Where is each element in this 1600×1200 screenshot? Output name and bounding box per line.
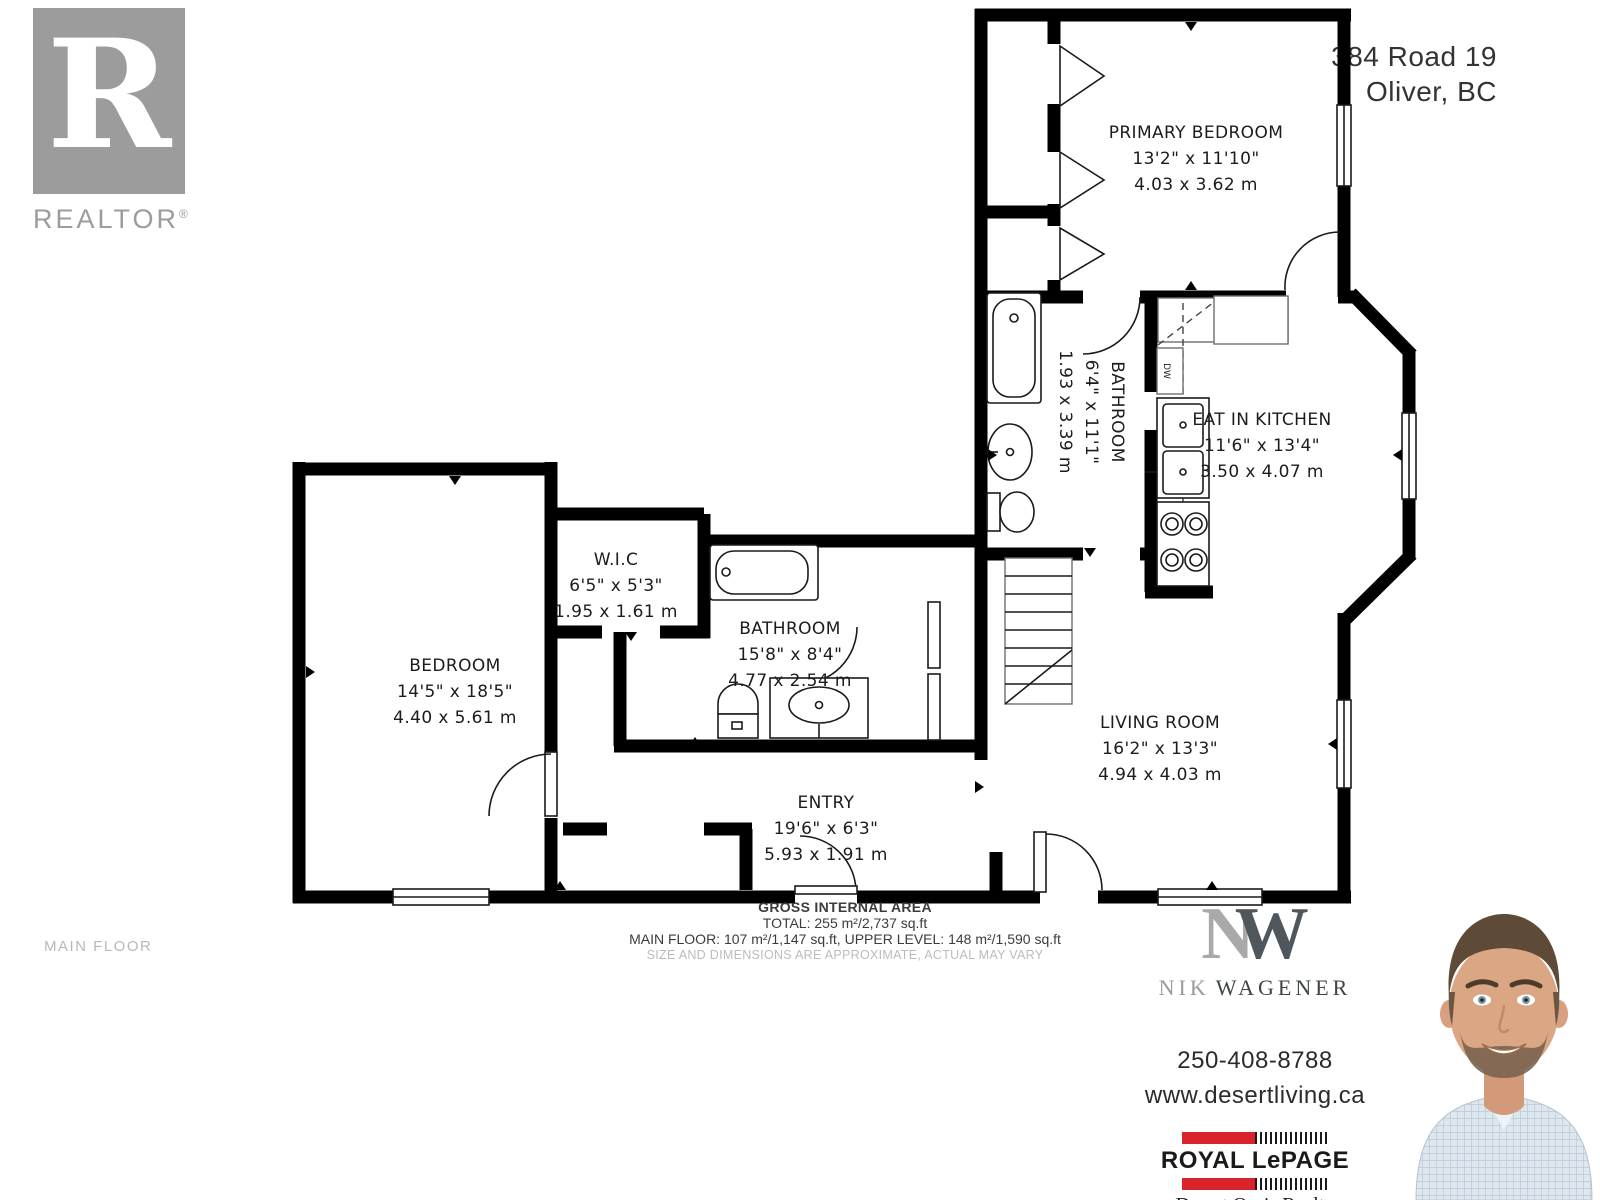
room-label-main-bathroom: BATHROOM 15'8" x 8'4" 4.77 x 2.54 m (728, 619, 852, 691)
svg-text:LIVING ROOM: LIVING ROOM (1100, 713, 1220, 733)
brokerage-bar-top (1182, 1132, 1328, 1144)
svg-text:13'2" x 11'10": 13'2" x 11'10" (1132, 149, 1259, 169)
agent-branding: NW NIKWAGENER 250-408-8788 www.desertliv… (1085, 905, 1425, 1200)
floor-level-label: MAIN FLOOR (44, 938, 152, 955)
svg-text:4.40 x 5.61 m: 4.40 x 5.61 m (393, 708, 517, 728)
door-arc-primary-bedroom (1285, 232, 1340, 290)
brokerage-bar-bottom (1182, 1178, 1328, 1190)
door-arc-living (1046, 834, 1102, 890)
window-kitchen-bay (1402, 413, 1416, 499)
bathtub-main (710, 545, 818, 600)
door-arc-bedroom (489, 754, 551, 816)
window-bedroom-bottom (393, 889, 489, 905)
room-label-kitchen: EAT IN KITCHEN 11'6" x 13'4" 3.50 x 4.07… (1192, 410, 1331, 482)
bathtub-upper (987, 293, 1041, 403)
svg-text:5.93 x 1.91 m: 5.93 x 1.91 m (764, 845, 888, 865)
room-label-upper-bathroom: BATHROOM 6'4" x 11'1" 1.93 x 3.39 m (1055, 350, 1127, 474)
svg-text:4.94 x 4.03 m: 4.94 x 4.03 m (1098, 765, 1222, 785)
area-summary: GROSS INTERNAL AREA TOTAL: 255 m²/2,737 … (520, 900, 1170, 963)
svg-text:BATHROOM: BATHROOM (1107, 361, 1127, 463)
svg-text:11'6" x 13'4": 11'6" x 13'4" (1204, 436, 1320, 456)
window-living-room-side (1337, 700, 1351, 788)
agent-headshot-illustration (1408, 880, 1600, 1200)
closet-bifold-doors (1060, 46, 1104, 280)
svg-text:4.77 x 2.54 m: 4.77 x 2.54 m (728, 671, 852, 691)
svg-text:EAT IN KITCHEN: EAT IN KITCHEN (1192, 410, 1331, 430)
linen-closet-doors (928, 602, 940, 740)
door-sill-entry (795, 886, 857, 894)
area-total: TOTAL: 255 m²/2,737 sq.ft (520, 916, 1170, 931)
area-disclaimer: SIZE AND DIMENSIONS ARE APPROXIMATE, ACT… (520, 949, 1170, 963)
svg-text:4.03 x 3.62 m: 4.03 x 3.62 m (1134, 175, 1258, 195)
agent-website: www.desertliving.ca (1085, 1082, 1425, 1110)
room-label-entry: ENTRY 19'6" x 6'3" 5.93 x 1.91 m (764, 793, 888, 865)
stove (1157, 502, 1209, 586)
svg-text:W.I.C: W.I.C (594, 550, 639, 570)
sink-upper (987, 424, 1032, 480)
svg-text:PRIMARY BEDROOM: PRIMARY BEDROOM (1109, 123, 1284, 143)
room-label-living-room: LIVING ROOM 16'2" x 13'3" 4.94 x 4.03 m (1098, 713, 1222, 785)
svg-text:3.50 x 4.07 m: 3.50 x 4.07 m (1200, 462, 1324, 482)
svg-text:19'6" x 6'3": 19'6" x 6'3" (774, 819, 879, 839)
door-arc-upper-bathroom (1083, 297, 1140, 354)
brokerage-name: ROYAL LePAGE (1085, 1147, 1425, 1175)
area-breakdown: MAIN FLOOR: 107 m²/1,147 sq.ft, UPPER LE… (520, 932, 1170, 947)
toilet-main (718, 684, 758, 738)
brokerage-office: Desert Oasis Realty (1085, 1194, 1425, 1200)
svg-text:DW: DW (1161, 363, 1171, 379)
svg-text:14'5" x 18'5": 14'5" x 18'5" (397, 682, 513, 702)
room-label-bedroom: BEDROOM 14'5" x 18'5" 4.40 x 5.61 m (393, 656, 517, 728)
main-bathroom-fixtures (710, 545, 940, 740)
agent-first-name: NIK (1159, 975, 1210, 1000)
svg-text:6'5" x 5'3": 6'5" x 5'3" (569, 576, 663, 596)
page: R REALTOR® 384 Road 19 Oliver, BC (0, 0, 1600, 1200)
agent-name: NIKWAGENER (1085, 975, 1425, 1001)
svg-text:1.95 x 1.61 m: 1.95 x 1.61 m (554, 602, 678, 622)
area-title: GROSS INTERNAL AREA (520, 900, 1170, 915)
staircase (1005, 558, 1072, 704)
agent-last-name: WAGENER (1216, 975, 1352, 1000)
toilet-upper (987, 492, 1034, 532)
svg-text:BATHROOM: BATHROOM (739, 619, 841, 639)
brokerage-logo: ROYAL LePAGE Desert Oasis Realty Indepen… (1085, 1132, 1425, 1200)
svg-text:15'8" x 8'4": 15'8" x 8'4" (738, 645, 843, 665)
upper-bathroom-fixtures (987, 293, 1041, 532)
room-label-primary-bedroom: PRIMARY BEDROOM 13'2" x 11'10" 4.03 x 3.… (1109, 123, 1284, 195)
door-leaf-bedroom (545, 752, 557, 816)
door-leaf-living (1034, 832, 1046, 892)
svg-text:6'4" x 11'1": 6'4" x 11'1" (1081, 360, 1101, 465)
svg-text:1.93 x 3.39 m: 1.93 x 3.39 m (1055, 350, 1075, 474)
monogram-w: W (1235, 893, 1309, 975)
agent-headshot (1408, 880, 1600, 1200)
room-label-wic: W.I.C 6'5" x 5'3" 1.95 x 1.61 m (554, 550, 678, 622)
agent-phone: 250-408-8788 (1085, 1047, 1425, 1075)
svg-text:16'2" x 13'3": 16'2" x 13'3" (1102, 739, 1218, 759)
window-primary-bedroom (1337, 105, 1351, 186)
agent-monogram-logo: NW (1085, 905, 1425, 967)
svg-text:ENTRY: ENTRY (798, 793, 855, 813)
svg-text:BEDROOM: BEDROOM (409, 656, 501, 676)
dishwasher: DW (1157, 348, 1183, 394)
